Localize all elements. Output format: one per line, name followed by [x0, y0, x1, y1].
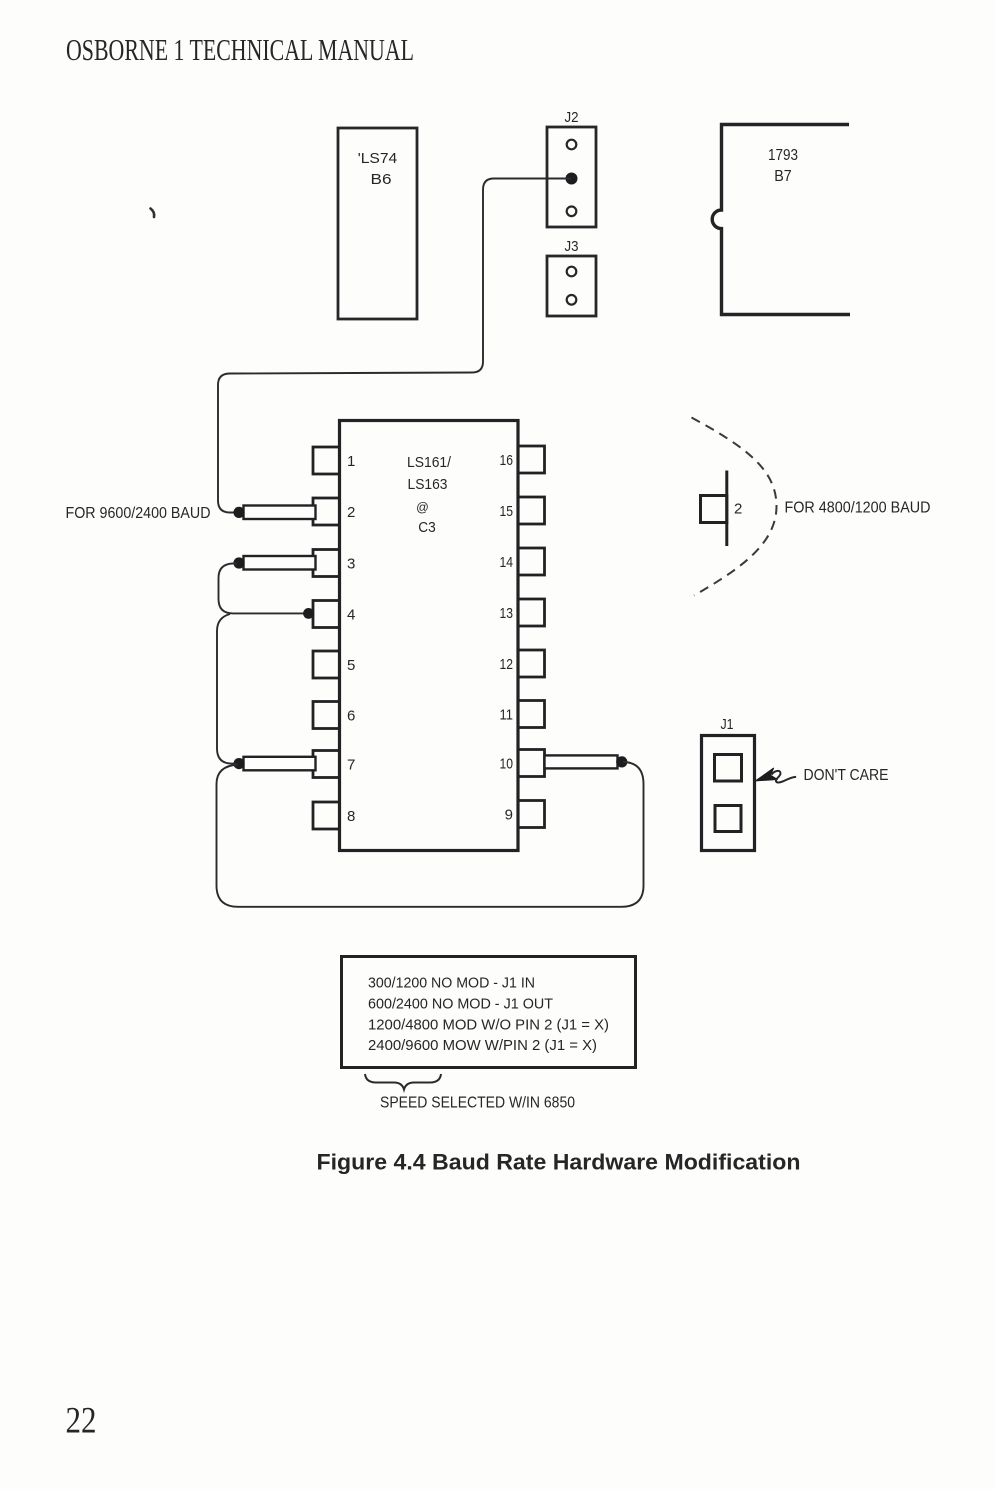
svg-text:15: 15	[500, 503, 514, 520]
svg-text:22: 22	[66, 1400, 97, 1441]
svg-text:LS161/: LS161/	[407, 454, 452, 471]
svg-text:1: 1	[347, 453, 355, 470]
svg-text:C3: C3	[418, 519, 436, 536]
svg-text:4: 4	[347, 607, 355, 624]
svg-text:LS163: LS163	[408, 476, 448, 493]
svg-text:6: 6	[347, 708, 355, 725]
svg-text:8: 8	[347, 808, 355, 825]
svg-text:600/2400 NO MOD - J1 OUT: 600/2400 NO MOD - J1 OUT	[368, 996, 553, 1013]
svg-text:2400/9600 MOW W/PIN 2 (J1 = X): 2400/9600 MOW W/PIN 2 (J1 = X)	[368, 1037, 597, 1054]
svg-text:@: @	[416, 501, 429, 515]
svg-text:10: 10	[500, 756, 514, 773]
svg-text:7: 7	[347, 757, 355, 774]
svg-text:J3: J3	[565, 238, 579, 255]
svg-text:SPEED SELECTED W/IN 6850: SPEED SELECTED W/IN 6850	[380, 1095, 575, 1112]
svg-text:DON'T CARE: DON'T CARE	[804, 767, 889, 784]
svg-text:13: 13	[500, 605, 514, 622]
svg-text:3: 3	[347, 556, 355, 573]
svg-text:J2: J2	[565, 109, 579, 126]
svg-text:OSBORNE 1 TECHNICAL MANUAL: OSBORNE 1 TECHNICAL MANUAL	[66, 32, 414, 67]
svg-text:1793: 1793	[768, 147, 798, 164]
svg-text:FOR 4800/1200 BAUD: FOR 4800/1200 BAUD	[785, 500, 931, 517]
svg-text:B6: B6	[371, 171, 392, 188]
svg-text:'LS74: 'LS74	[358, 150, 398, 167]
svg-text:B7: B7	[774, 168, 792, 185]
svg-text:12: 12	[500, 656, 514, 673]
svg-text:300/1200 NO MOD - J1 IN: 300/1200 NO MOD - J1 IN	[368, 975, 535, 992]
svg-text:Figure 4.4 Baud Rate Hardware: Figure 4.4 Baud Rate Hardware Modificati…	[317, 1150, 801, 1175]
svg-text:2: 2	[347, 504, 355, 521]
svg-text:J1: J1	[721, 716, 734, 733]
svg-text:FOR 9600/2400 BAUD: FOR 9600/2400 BAUD	[66, 505, 211, 522]
svg-text:9: 9	[505, 807, 513, 824]
svg-text:14: 14	[500, 554, 514, 571]
svg-text:5: 5	[347, 657, 355, 674]
svg-text:16: 16	[500, 452, 514, 469]
svg-text:1200/4800 MOD W/O PIN 2 (J1 =: 1200/4800 MOD W/O PIN 2 (J1 = X)	[368, 1017, 609, 1034]
svg-text:11: 11	[500, 707, 514, 724]
svg-text:2: 2	[734, 501, 742, 518]
